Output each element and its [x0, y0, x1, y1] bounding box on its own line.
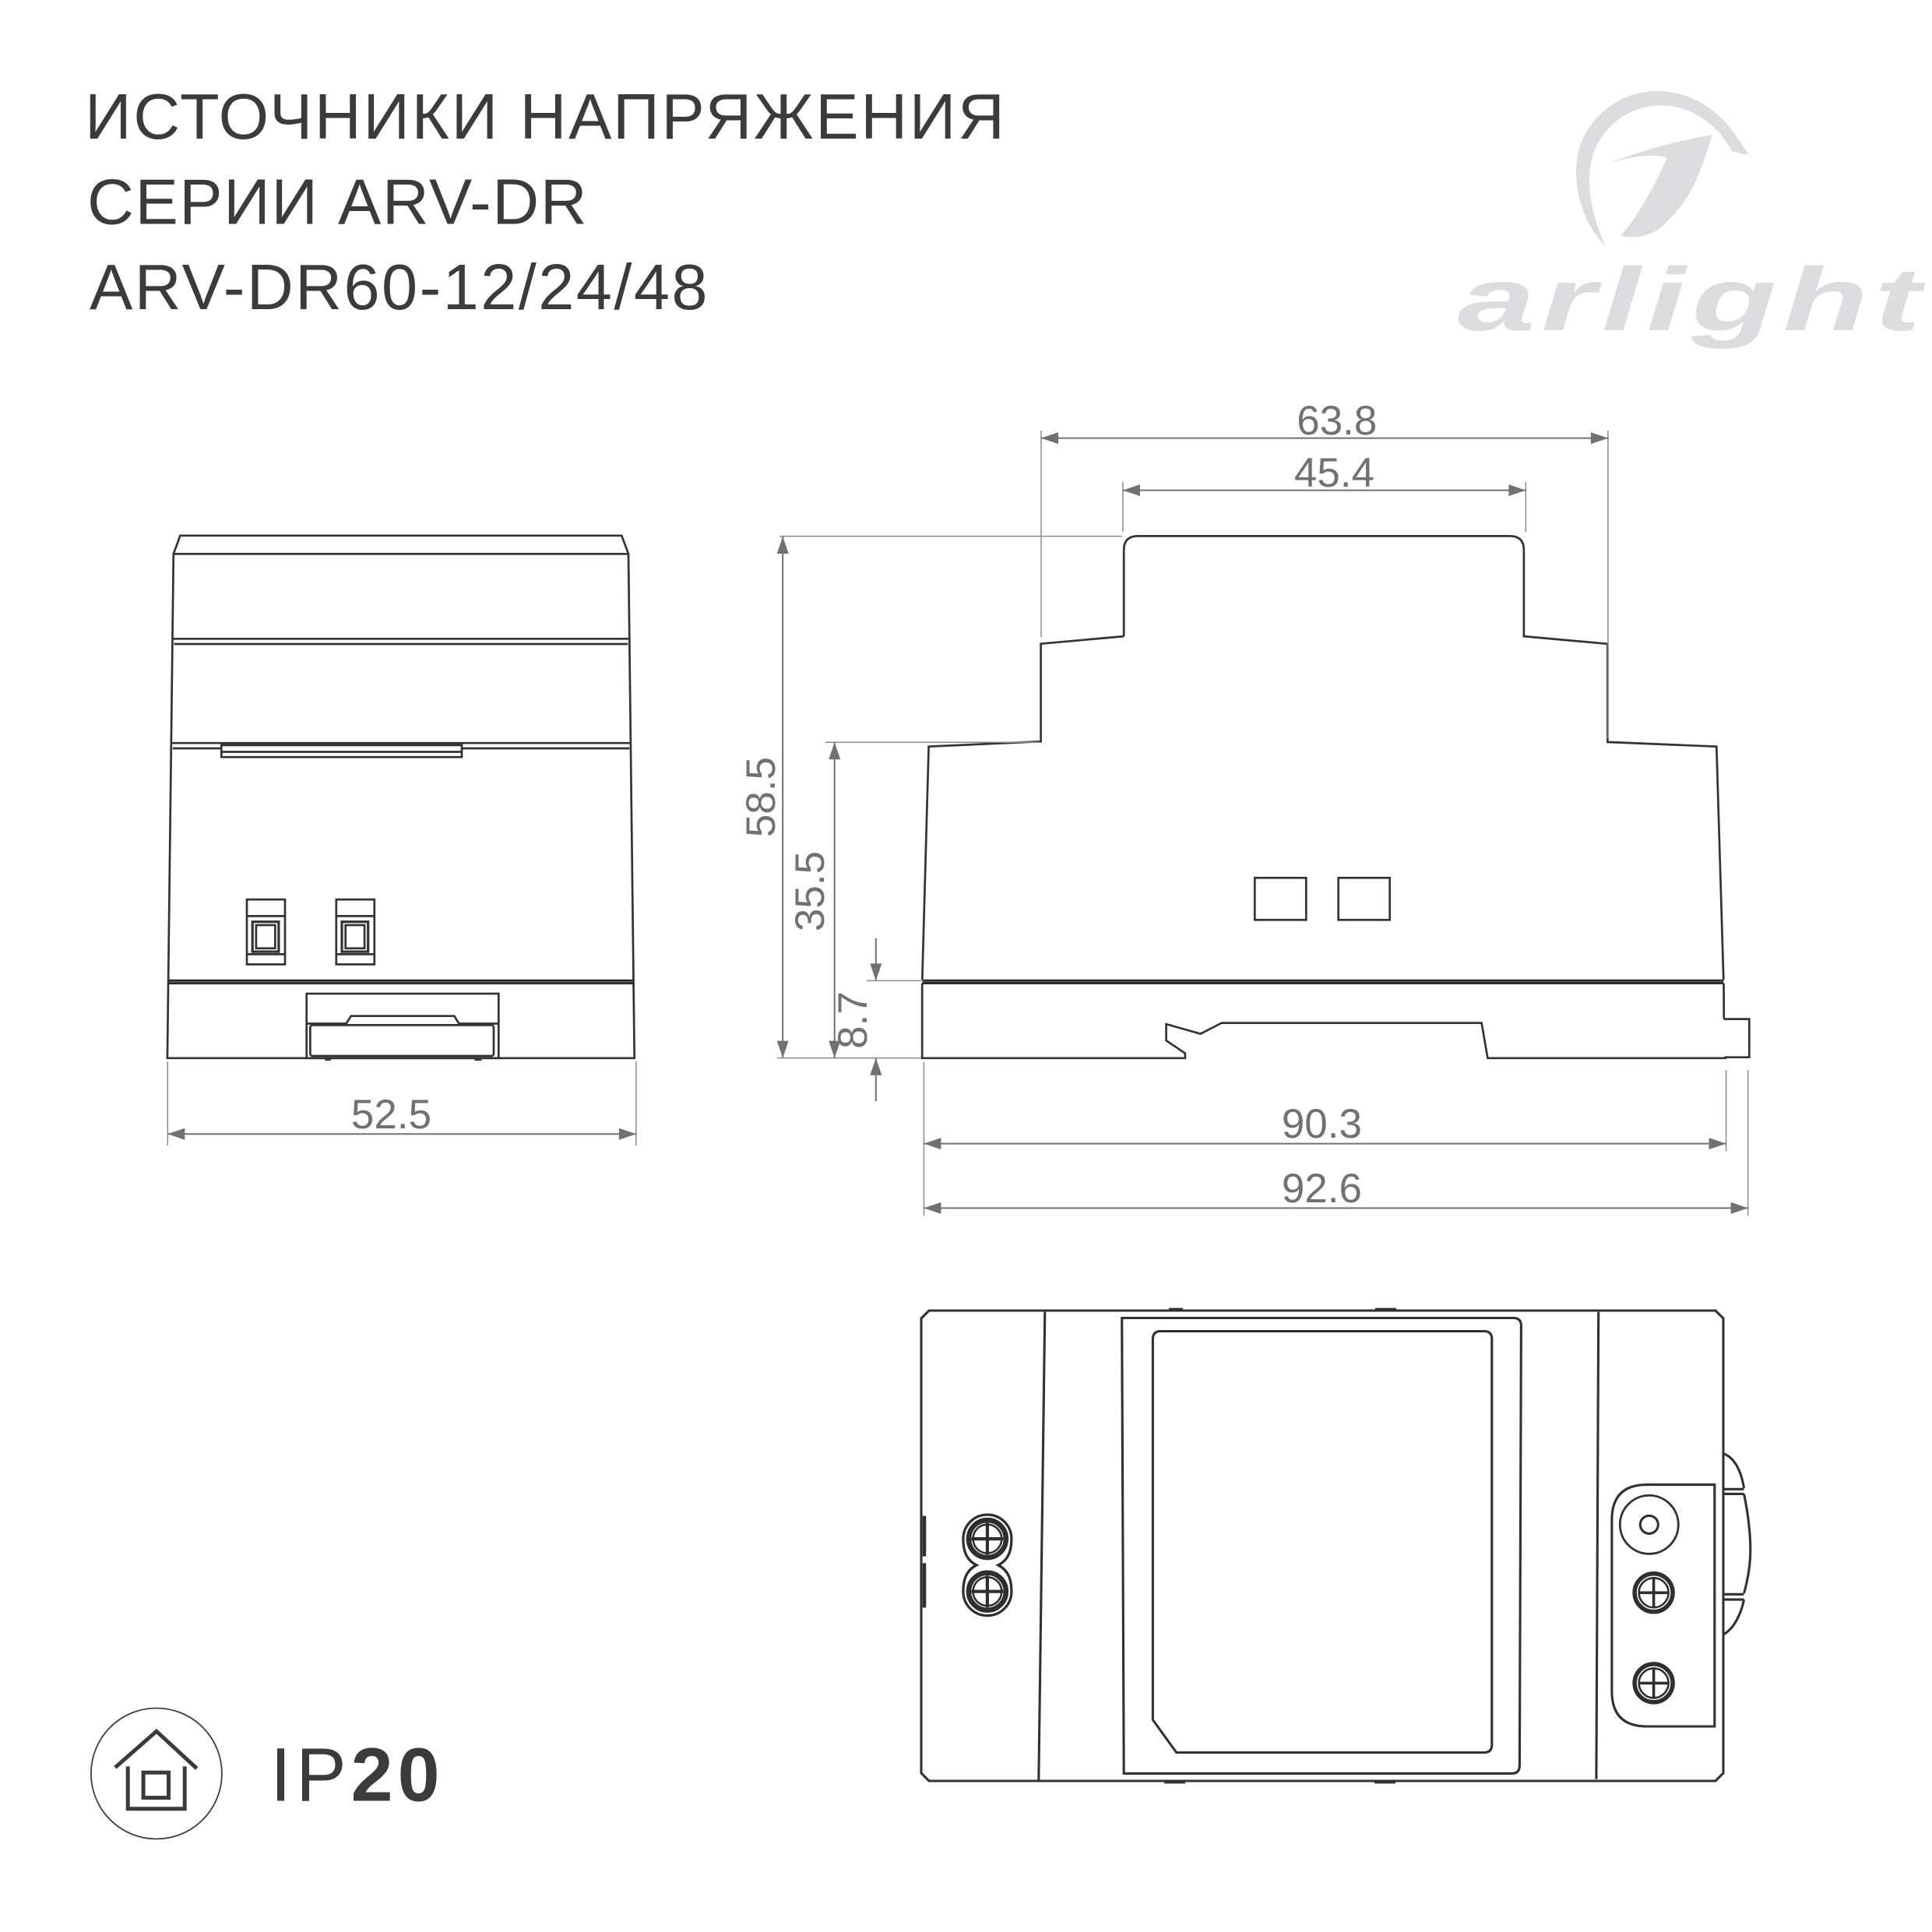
svg-text:90.3: 90.3 [1282, 1101, 1362, 1147]
svg-text:8.7: 8.7 [830, 991, 876, 1049]
svg-text:92.6: 92.6 [1282, 1166, 1362, 1212]
svg-text:58.5: 58.5 [738, 757, 784, 837]
svg-text:45.4: 45.4 [1294, 450, 1374, 496]
svg-text:35.5: 35.5 [787, 851, 833, 931]
svg-text:СЕРИИ ARV-DR: СЕРИИ ARV-DR [87, 166, 588, 238]
svg-text:63.8: 63.8 [1297, 398, 1377, 444]
svg-text:ARV-DR60-12/24/48: ARV-DR60-12/24/48 [90, 251, 709, 323]
svg-text:52.5: 52.5 [351, 1092, 431, 1138]
svg-text:IP20: IP20 [270, 1732, 445, 1817]
svg-text:ИСТОЧНИКИ НАПРЯЖЕНИЯ: ИСТОЧНИКИ НАПРЯЖЕНИЯ [85, 80, 1007, 153]
svg-text:arlight: arlight [1458, 249, 1927, 349]
